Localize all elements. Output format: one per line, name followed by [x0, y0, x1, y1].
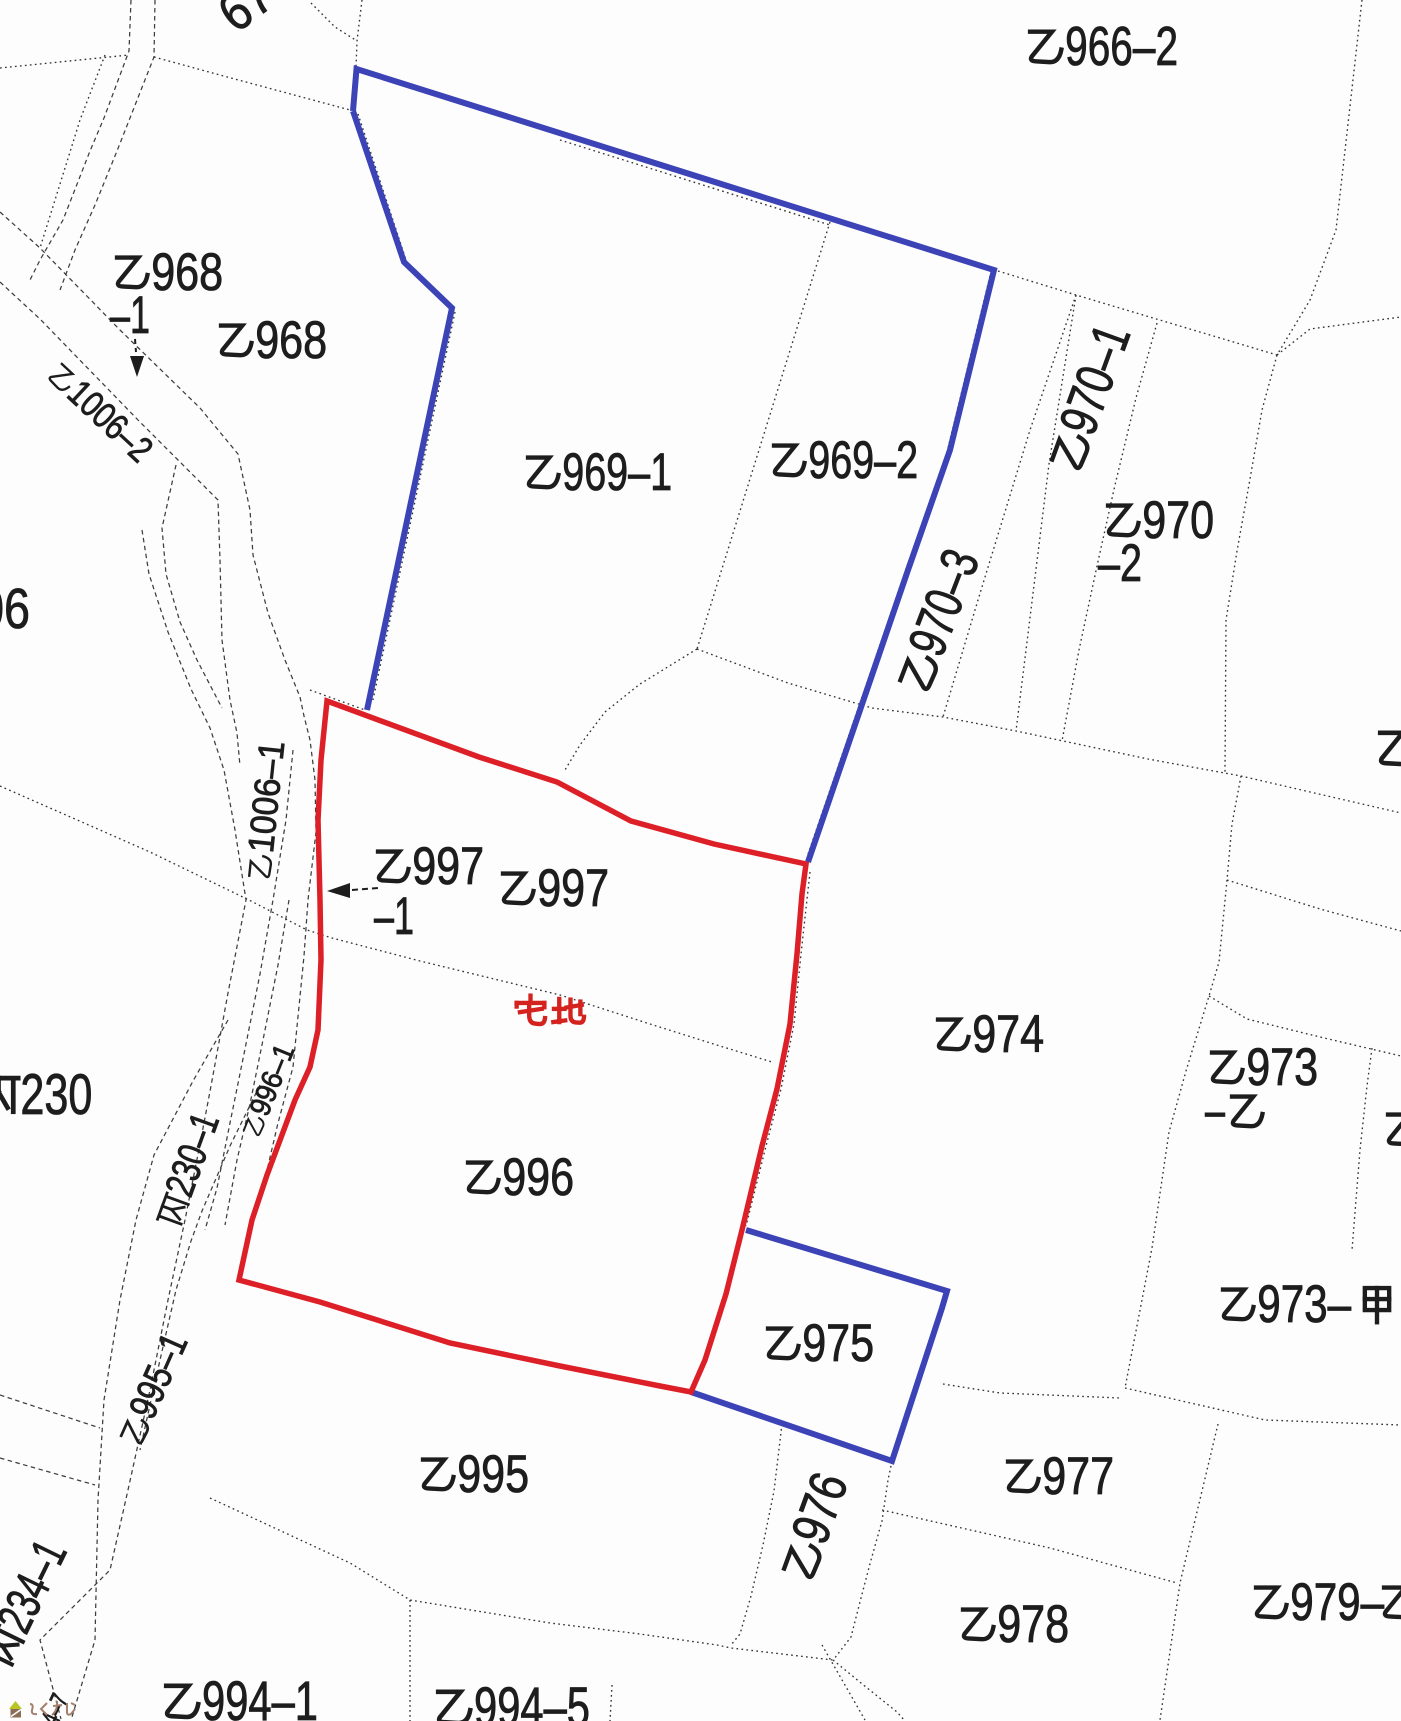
svg-text:968: 968: [151, 243, 223, 302]
svg-text:974: 974: [972, 1005, 1044, 1064]
svg-text:06: 06: [0, 577, 30, 641]
svg-text:997: 997: [412, 837, 484, 896]
svg-text:970: 970: [1142, 491, 1214, 550]
svg-text:975: 975: [802, 1314, 874, 1373]
svg-text:–2: –2: [1098, 534, 1142, 593]
svg-text:–1: –1: [110, 286, 150, 345]
svg-text:968: 968: [255, 311, 327, 370]
svg-text:995: 995: [457, 1445, 529, 1504]
svg-text:230: 230: [20, 1063, 92, 1127]
svg-text:966–2: 966–2: [1065, 16, 1178, 77]
svg-text:977: 977: [1042, 1447, 1114, 1506]
svg-text:973: 973: [1246, 1038, 1318, 1097]
svg-text:994–1: 994–1: [202, 1669, 318, 1721]
svg-text:994–5: 994–5: [474, 1675, 590, 1721]
svg-text:–: –: [1205, 1081, 1225, 1140]
svg-text:997: 997: [537, 859, 609, 918]
svg-text:979–: 979–: [1290, 1573, 1384, 1632]
svg-text:978: 978: [997, 1595, 1069, 1654]
svg-text:969–1: 969–1: [562, 443, 672, 502]
svg-text:973–: 973–: [1257, 1275, 1351, 1334]
svg-text:–1: –1: [374, 887, 414, 946]
svg-text:969–2: 969–2: [808, 431, 918, 490]
svg-text:996: 996: [502, 1148, 574, 1207]
